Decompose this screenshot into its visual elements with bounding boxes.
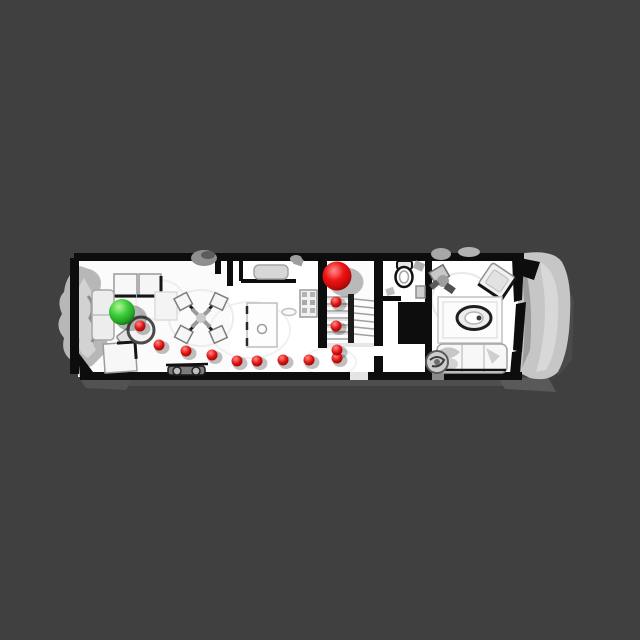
stove — [300, 290, 317, 317]
path-waypoint — [232, 356, 243, 367]
stair-rail — [348, 294, 354, 346]
kitchen-sink — [254, 265, 288, 279]
path-waypoint — [278, 355, 289, 366]
path-waypoint — [331, 321, 342, 332]
path-waypoint — [252, 356, 263, 367]
path-waypoint — [332, 345, 343, 356]
path-waypoint — [135, 321, 146, 332]
start-sphere — [109, 299, 135, 325]
path-waypoint — [207, 350, 218, 361]
floorplan-canvas — [0, 0, 640, 640]
path-waypoint — [181, 346, 192, 357]
toilet — [396, 261, 413, 287]
bottom-bench — [166, 364, 208, 375]
navigation-visualization — [0, 0, 640, 640]
path-waypoint — [331, 297, 342, 308]
path-waypoint — [304, 355, 315, 366]
swirl-chair — [426, 351, 448, 373]
path-waypoint — [154, 340, 165, 351]
counter-oval — [282, 309, 296, 316]
ottoman — [103, 342, 137, 373]
sofa-top — [112, 274, 161, 297]
kitchen-island — [247, 303, 277, 347]
goal-sphere — [323, 262, 352, 291]
coffee-table — [438, 297, 502, 343]
side-cabinet — [155, 292, 177, 320]
